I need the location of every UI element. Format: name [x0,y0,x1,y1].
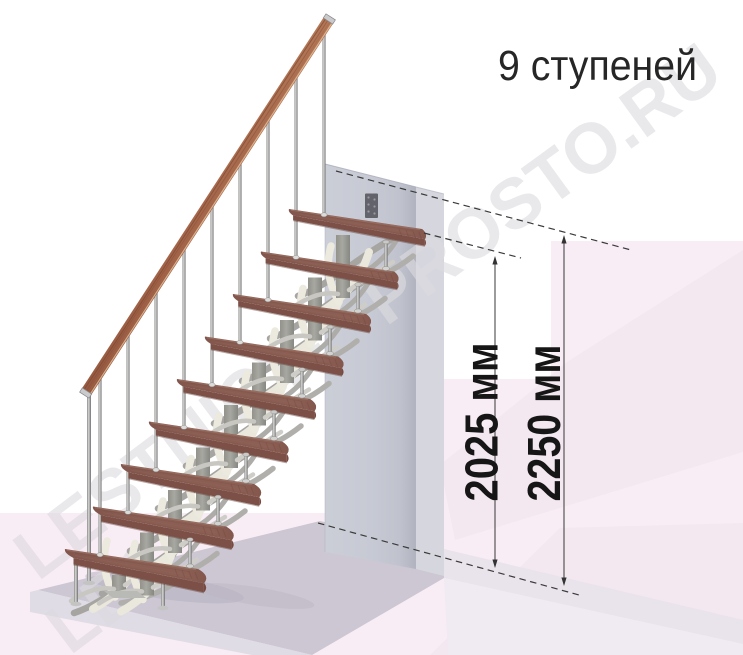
svg-text:9 ступеней: 9 ступеней [498,42,697,90]
svg-text:2250 мм: 2250 мм [518,345,570,502]
svg-text:2025 мм: 2025 мм [456,343,508,502]
